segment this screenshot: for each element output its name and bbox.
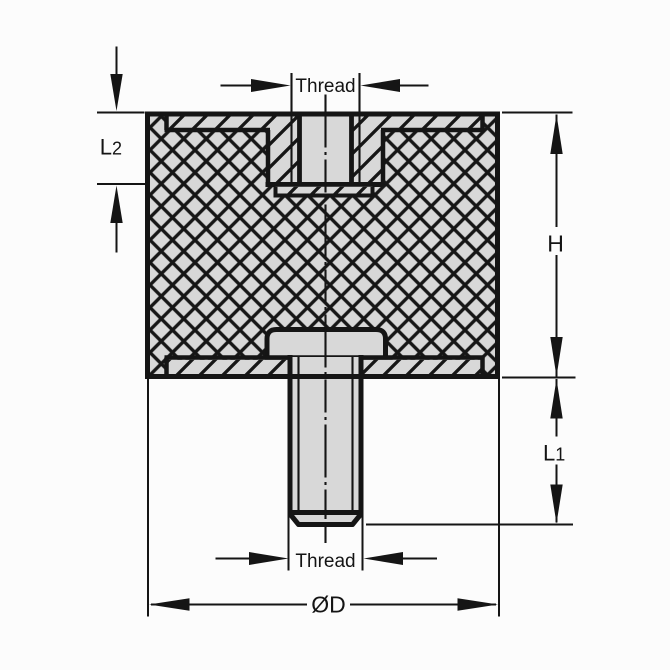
svg-text:Thread: Thread	[295, 551, 355, 572]
svg-text:L2: L2	[100, 134, 122, 159]
svg-text:Thread: Thread	[295, 76, 355, 97]
svg-text:ØD: ØD	[311, 592, 346, 618]
svg-text:L1: L1	[543, 441, 565, 466]
svg-text:H: H	[547, 231, 564, 257]
